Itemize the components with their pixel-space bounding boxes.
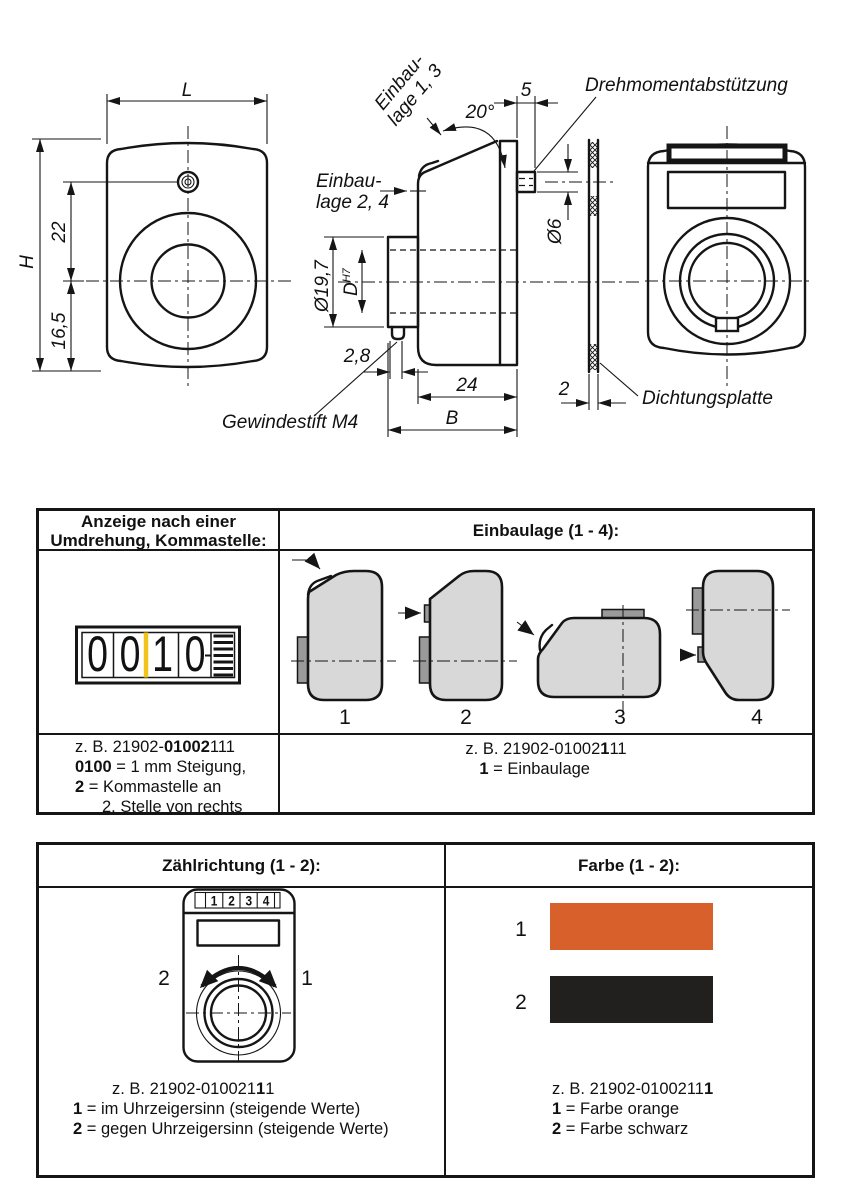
- mounting-position-figures: 1 2 3 4: [278, 550, 815, 735]
- swatch-orange-label: 1: [515, 918, 527, 941]
- order-code: z. B. 21902-01002111: [465, 739, 626, 759]
- table1-header-left: Anzeige nach einer Umdrehung, Kommastell…: [39, 512, 278, 550]
- table1-header-right: Einbaulage (1 - 4):: [280, 521, 812, 540]
- swatch-black: [550, 976, 713, 1023]
- catalog-page: L H 22 16,5: [0, 0, 848, 1200]
- label-einbaulage-1-3: Einbau- lage 1, 3: [368, 47, 447, 130]
- counting-direction-figure: 1 2 3 4 2 1: [150, 882, 320, 1072]
- table2-left-code-block: z. B. 21902-01002111 1 = im Uhrzeigersin…: [73, 1079, 389, 1139]
- torque-pin: [517, 172, 535, 192]
- order-code: z. B. 21902-01002111: [112, 1079, 389, 1099]
- technical-drawing: L H 22 16,5: [0, 0, 848, 500]
- svg-text:0: 0: [87, 627, 108, 682]
- label-gewindestift: Gewindestift M4: [222, 412, 358, 433]
- svg-text:1: 1: [211, 893, 218, 909]
- table1-right-code-block: z. B. 21902-01002111 1 = Einbaulage: [280, 739, 812, 779]
- swatch-orange: [550, 903, 713, 950]
- dim-L: L: [182, 80, 193, 101]
- position-1-figure: 1: [291, 560, 396, 729]
- dim-D-H7: DH7: [341, 267, 362, 296]
- direction-label-ccw: 2: [158, 967, 170, 990]
- svg-text:0: 0: [120, 627, 141, 682]
- svg-text:4: 4: [263, 893, 270, 909]
- svg-text:3: 3: [245, 893, 252, 909]
- back-view: [645, 126, 810, 390]
- order-code: z. B. 21902-01002111: [552, 1079, 713, 1099]
- svg-text:0: 0: [185, 627, 206, 682]
- dim-16-5: 16,5: [49, 312, 70, 349]
- dim-angle-20: 20°: [465, 102, 495, 123]
- table2-header-left: Zählrichtung (1 - 2):: [39, 856, 444, 875]
- dim-H: H: [17, 255, 38, 269]
- dim-24: 24: [455, 375, 477, 396]
- dim-5: 5: [521, 80, 532, 101]
- svg-text:1: 1: [152, 627, 173, 682]
- order-code: z. B. 21902-01002111: [75, 737, 246, 757]
- position-3-figure: 3: [517, 605, 660, 729]
- dim-2-8: 2,8: [343, 346, 371, 367]
- colour-swatches-figure: 1 2: [443, 880, 815, 1080]
- table1-left-code-block: z. B. 21902-01002111 0100 = 1 mm Steigun…: [75, 737, 246, 817]
- front-view: L H 22 16,5: [17, 80, 292, 390]
- position-label: 3: [614, 706, 626, 729]
- label-dichtungsplatte: Dichtungsplatte: [642, 388, 773, 409]
- swatch-black-label: 2: [515, 991, 527, 1014]
- position-label: 2: [460, 706, 472, 729]
- dim-22: 22: [49, 221, 70, 244]
- svg-text:2: 2: [228, 893, 235, 909]
- dim-B: B: [446, 408, 459, 429]
- label-einbaulage-2-4: Einbau-: [316, 171, 382, 192]
- dial-window: [198, 921, 280, 946]
- side-view: 5 Ø6 Ø19,7 DH7 2,8 24: [222, 47, 788, 437]
- position-4-figure: 4: [680, 571, 790, 729]
- counter-display-figure: 0 0 1 0: [70, 620, 248, 688]
- svg-text:lage 2, 4: lage 2, 4: [316, 192, 389, 213]
- position-label: 1: [339, 706, 351, 729]
- direction-label-cw: 1: [301, 967, 313, 990]
- label-drehmoment: Drehmomentabstützung: [585, 75, 788, 96]
- setscrew-side: [392, 327, 404, 339]
- dim-dia6: Ø6: [545, 218, 566, 245]
- dim-dia19-7: Ø19,7: [312, 259, 333, 313]
- dim-2: 2: [558, 379, 570, 400]
- table2-header-right: Farbe (1 - 2):: [446, 856, 812, 875]
- table2-right-code-block: z. B. 21902-01002111 1 = Farbe orange 2 …: [552, 1079, 713, 1139]
- position-label: 4: [751, 706, 763, 729]
- position-2-figure: 2: [398, 571, 517, 729]
